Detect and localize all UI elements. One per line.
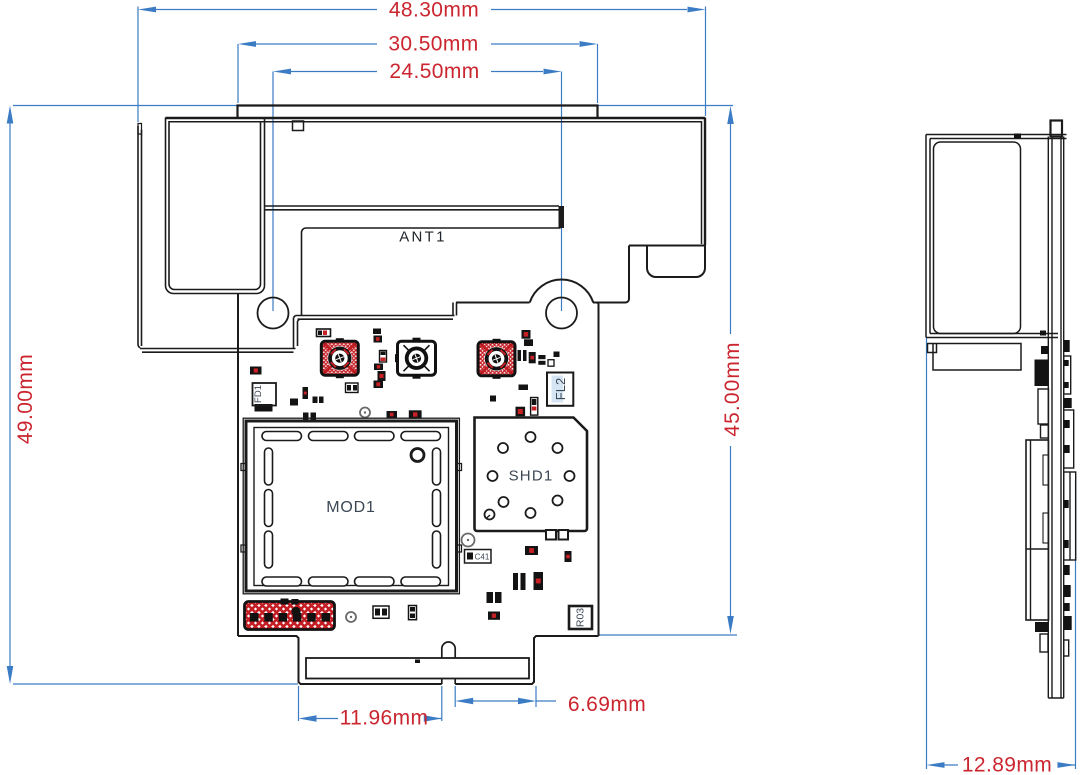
svg-text:FL2: FL2 (553, 378, 568, 400)
svg-text:C41: C41 (475, 553, 490, 562)
svg-text:30.50mm: 30.50mm (388, 33, 478, 56)
svg-text:SHD1: SHD1 (509, 468, 554, 485)
svg-text:FD1: FD1 (253, 385, 264, 403)
svg-text:6.69mm: 6.69mm (568, 693, 646, 716)
svg-text:48.30mm: 48.30mm (389, 0, 479, 22)
svg-text:12.89mm: 12.89mm (962, 754, 1052, 775)
svg-text:45.00mm: 45.00mm (721, 341, 744, 436)
svg-text:R03: R03 (575, 608, 587, 627)
svg-text:11.96mm: 11.96mm (340, 707, 429, 730)
svg-text:49.00mm: 49.00mm (14, 354, 37, 444)
svg-text:24.50mm: 24.50mm (389, 60, 479, 83)
svg-text:ANT1: ANT1 (399, 229, 447, 246)
svg-text:MOD1: MOD1 (326, 499, 375, 516)
